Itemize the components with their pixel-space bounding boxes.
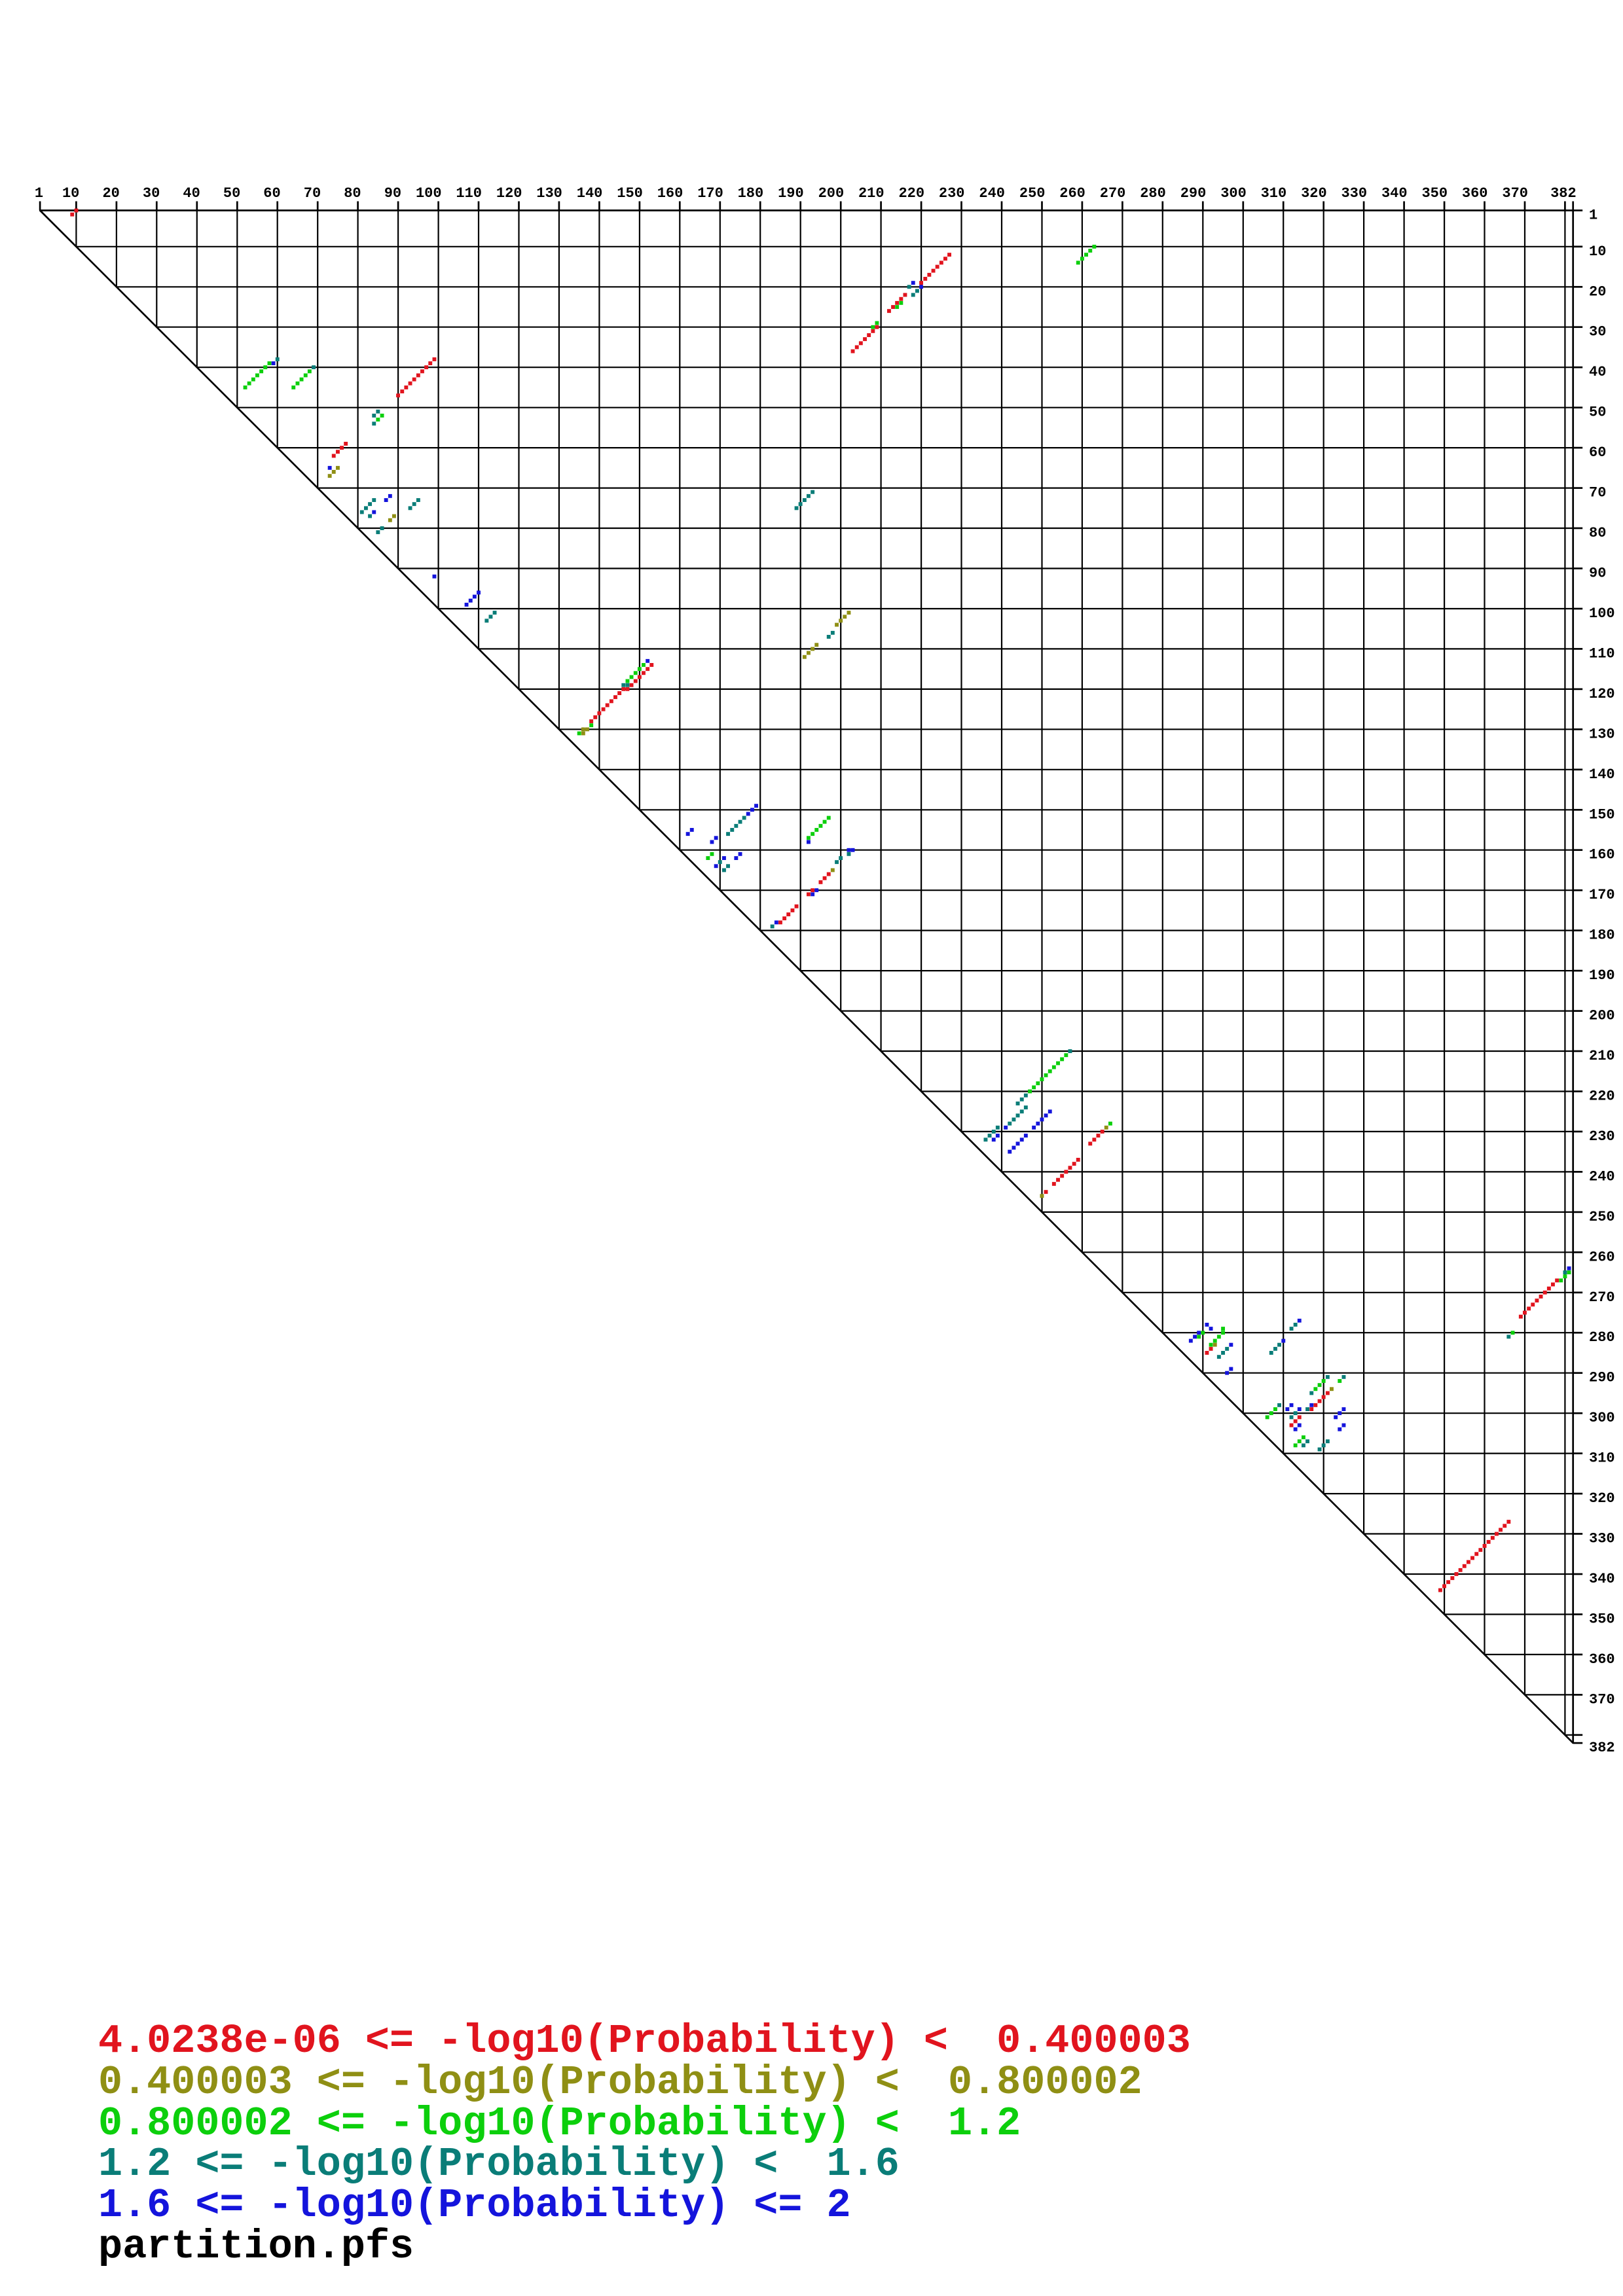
svg-text:360: 360 — [1589, 1651, 1615, 1668]
svg-text:140: 140 — [577, 185, 603, 202]
svg-text:280: 280 — [1589, 1329, 1615, 1346]
svg-text:90: 90 — [384, 185, 401, 202]
svg-text:110: 110 — [1589, 645, 1615, 662]
svg-text:210: 210 — [858, 185, 884, 202]
svg-text:10: 10 — [1589, 243, 1606, 260]
svg-text:190: 190 — [1589, 967, 1615, 984]
svg-text:100: 100 — [1589, 605, 1615, 622]
svg-text:190: 190 — [778, 185, 804, 202]
svg-text:330: 330 — [1589, 1531, 1615, 1547]
svg-text:4.0238e-06 <= -log10(Probabili: 4.0238e-06 <= -log10(Probability) < 0.40… — [98, 2018, 1191, 2064]
svg-text:290: 290 — [1589, 1370, 1615, 1386]
svg-text:220: 220 — [898, 185, 924, 202]
svg-text:210: 210 — [1589, 1048, 1615, 1064]
svg-text:240: 240 — [979, 185, 1005, 202]
svg-text:140: 140 — [1589, 766, 1615, 783]
svg-text:70: 70 — [1589, 485, 1606, 501]
svg-text:220: 220 — [1589, 1088, 1615, 1105]
svg-text:130: 130 — [1589, 726, 1615, 742]
svg-text:270: 270 — [1589, 1289, 1615, 1306]
svg-text:150: 150 — [1589, 806, 1615, 823]
svg-text:200: 200 — [1589, 1008, 1615, 1024]
svg-text:230: 230 — [939, 185, 965, 202]
svg-text:360: 360 — [1462, 185, 1488, 202]
svg-text:250: 250 — [1019, 185, 1046, 202]
svg-text:110: 110 — [456, 185, 482, 202]
svg-text:1: 1 — [35, 185, 43, 202]
svg-text:160: 160 — [657, 185, 684, 202]
svg-text:180: 180 — [1589, 927, 1615, 944]
svg-text:0.800002 <= -log10(Probability: 0.800002 <= -log10(Probability) < 1.2 — [98, 2101, 1021, 2147]
svg-text:230: 230 — [1589, 1128, 1615, 1145]
svg-text:200: 200 — [818, 185, 845, 202]
svg-text:60: 60 — [263, 185, 280, 202]
svg-text:260: 260 — [1059, 185, 1085, 202]
svg-text:20: 20 — [102, 185, 119, 202]
svg-text:340: 340 — [1381, 185, 1408, 202]
svg-text:1.2 <= -log10(Probability) <: 1.2 <= -log10(Probability) < 1.6 — [98, 2142, 900, 2187]
svg-text:330: 330 — [1341, 185, 1367, 202]
svg-text:270: 270 — [1100, 185, 1126, 202]
svg-text:310: 310 — [1589, 1450, 1615, 1467]
svg-text:120: 120 — [496, 185, 522, 202]
svg-text:320: 320 — [1301, 185, 1327, 202]
svg-text:10: 10 — [62, 185, 79, 202]
svg-text:30: 30 — [1589, 324, 1606, 340]
svg-text:60: 60 — [1589, 444, 1606, 461]
svg-text:40: 40 — [1589, 364, 1606, 380]
svg-text:290: 290 — [1180, 185, 1207, 202]
svg-text:160: 160 — [1589, 847, 1615, 863]
svg-text:0.400003 <= -log10(Probability: 0.400003 <= -log10(Probability) < 0.8000… — [98, 2060, 1142, 2106]
svg-text:382: 382 — [1589, 1740, 1615, 1756]
svg-text:260: 260 — [1589, 1249, 1615, 1265]
svg-text:382: 382 — [1550, 185, 1577, 202]
svg-text:100: 100 — [416, 185, 442, 202]
svg-text:370: 370 — [1589, 1691, 1615, 1708]
svg-text:350: 350 — [1421, 185, 1448, 202]
svg-text:120: 120 — [1589, 686, 1615, 702]
svg-text:170: 170 — [697, 185, 723, 202]
svg-text:180: 180 — [738, 185, 764, 202]
svg-text:170: 170 — [1589, 887, 1615, 903]
svg-text:20: 20 — [1589, 283, 1606, 300]
svg-text:370: 370 — [1502, 185, 1528, 202]
svg-text:280: 280 — [1140, 185, 1166, 202]
svg-text:50: 50 — [223, 185, 240, 202]
svg-text:240: 240 — [1589, 1168, 1615, 1185]
svg-text:40: 40 — [183, 185, 200, 202]
svg-text:300: 300 — [1589, 1410, 1615, 1426]
svg-text:300: 300 — [1220, 185, 1247, 202]
svg-text:70: 70 — [304, 185, 321, 202]
svg-text:250: 250 — [1589, 1209, 1615, 1225]
svg-text:320: 320 — [1589, 1490, 1615, 1507]
svg-text:310: 310 — [1261, 185, 1287, 202]
svg-text:1.6 <= -log10(Probability) <=: 1.6 <= -log10(Probability) <= 2 — [98, 2183, 851, 2229]
svg-text:1: 1 — [1589, 207, 1597, 224]
svg-text:350: 350 — [1589, 1611, 1615, 1628]
svg-text:130: 130 — [536, 185, 562, 202]
svg-text:80: 80 — [1589, 525, 1606, 541]
svg-text:150: 150 — [617, 185, 643, 202]
svg-text:30: 30 — [143, 185, 160, 202]
svg-text:80: 80 — [344, 185, 361, 202]
svg-text:340: 340 — [1589, 1571, 1615, 1587]
svg-text:90: 90 — [1589, 565, 1606, 582]
svg-text:50: 50 — [1589, 404, 1606, 421]
svg-text:partition.pfs: partition.pfs — [98, 2224, 414, 2270]
